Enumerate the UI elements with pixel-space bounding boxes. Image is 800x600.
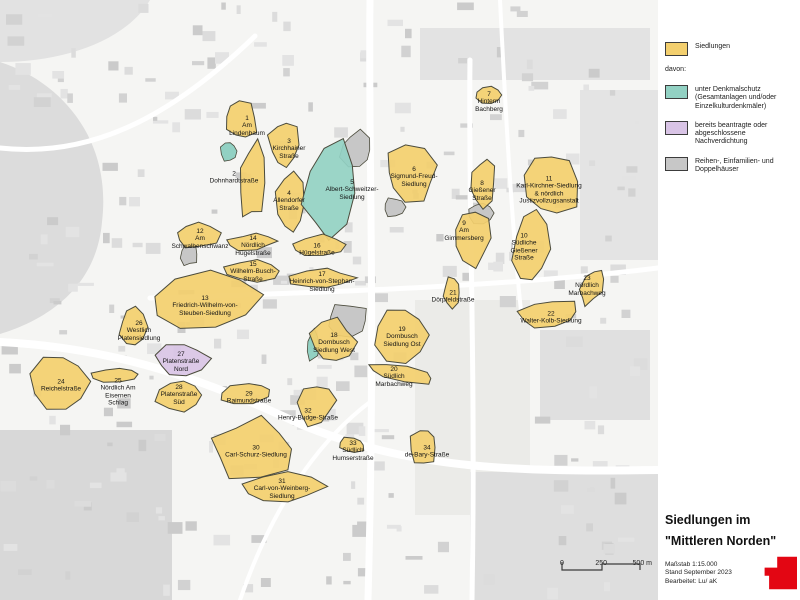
settlement-14: 14Nördlich Hügelstraße: [231, 235, 275, 257]
settlement-number: 22: [514, 311, 588, 318]
settlement-name: Henry-Budge-Straße: [270, 415, 346, 422]
settlement-name: Am Lindenbaum: [225, 122, 269, 137]
settlement-name: Hinterm Bachberg: [469, 98, 509, 113]
settlement-name: Am Schwalbenschwanz: [169, 235, 231, 250]
legend-item-nachverdichtung: bereits beantragte oder abgeschlossene N…: [665, 121, 797, 147]
settlement-number: 33: [329, 440, 377, 447]
settlement-number: 7: [469, 91, 509, 98]
settlement-number: 32: [270, 408, 346, 415]
map-scale-note: Maßstab 1:15.000: [665, 561, 757, 570]
settlement-5: 5Albert-Schweitzer-Siedlung: [323, 179, 381, 201]
settlement-name: Wilhelm-Busch-Straße: [224, 268, 282, 283]
settlement-16: 16Hügelstraße: [293, 243, 341, 258]
nachverdichtung-swatch: [665, 121, 688, 135]
settlement-11: 11Karl-Kirchner-Siedlung & nördlich Just…: [516, 175, 582, 204]
settlement-number: 1: [225, 115, 269, 122]
settlement-number: 2: [208, 171, 260, 178]
frankfurt-planning-logo-icon: [761, 556, 797, 590]
settlement-23: 23Nördlich Marbachweg: [565, 275, 609, 297]
settlement-name: Am Gimmersberg: [439, 227, 489, 242]
settlement-number: 34: [401, 445, 453, 452]
settlement-27: 27Platenstraße Nord: [157, 351, 205, 373]
settlement-9: 9Am Gimmersberg: [439, 220, 489, 242]
settlement-1: 1Am Lindenbaum: [225, 115, 269, 137]
settlement-number: 8: [464, 180, 500, 187]
settlement-number: 18: [313, 332, 355, 339]
settlement-number: 23: [565, 275, 609, 282]
settlement-name: Heinrich-von-Stephan-Siedlung: [282, 278, 362, 293]
map-sheet: 1Am Lindenbaum2Dohnhardtstraße3Kirchhain…: [0, 0, 800, 600]
settlement-20: 20Südlich Marbachweg: [371, 366, 417, 388]
settlement-number: 3: [269, 138, 309, 145]
settlement-number: 28: [155, 384, 203, 391]
settlement-29: 29Raimundstraße: [221, 391, 277, 406]
settlement-number: 29: [221, 391, 277, 398]
legend: Siedlungen davon: unter Denkmalschutz (G…: [665, 42, 797, 184]
settlement-name: Walter-Kolb-Siedlung: [514, 318, 588, 325]
settlement-number: 17: [282, 271, 362, 278]
settlement-13: 13Friedrich-Wilhelm-von-Steuben-Siedlung: [163, 295, 247, 317]
legend-label: Reihen-, Einfamilien- und Doppelhäuser: [695, 157, 797, 175]
settlement-number: 21: [429, 290, 477, 297]
settlement-22: 22Walter-Kolb-Siedlung: [514, 311, 588, 326]
settlement-10: 10Südliche Gießener Straße: [504, 232, 544, 261]
scale-bar-steps: [560, 560, 652, 574]
settlement-name: Nördlich Am Eisernen Schlag: [99, 385, 137, 407]
settlement-name: Nördlich Hügelstraße: [231, 242, 275, 257]
settlement-18: 18Dornbusch Siedlung West: [313, 332, 355, 354]
settlement-8: 8Gießener Straße: [464, 180, 500, 202]
settlement-number: 31: [243, 478, 321, 485]
map-title-line1: Siedlungen im: [665, 510, 797, 531]
legend-item-denkmalschutz: unter Denkmalschutz (Gesamtanlagen und/o…: [665, 85, 797, 111]
settlement-number: 12: [169, 228, 231, 235]
settlement-30: 30Carl-Schurz-Siedlung: [217, 445, 295, 460]
map-date-note: Stand September 2023: [665, 569, 757, 578]
settlement-17: 17Heinrich-von-Stephan-Siedlung: [282, 271, 362, 293]
settlement-name: Südlich Marbachweg: [371, 373, 417, 388]
settlement-name: Hügelstraße: [293, 250, 341, 257]
settlement-name: Westlich Platensiedlung: [115, 327, 163, 342]
settlement-number: 16: [293, 243, 341, 250]
settlement-2: 2Dohnhardtstraße: [208, 171, 260, 186]
map-title-line2: "Mittleren Norden": [665, 531, 797, 552]
settlement-number: 5: [323, 179, 381, 186]
settlement-number: 27: [157, 351, 205, 358]
settlement-name: Dörpfeldstraße: [429, 297, 477, 304]
settlement-name: Gießener Straße: [464, 187, 500, 202]
settlement-number: 15: [224, 261, 282, 268]
settlement-name: Karl-Kirchner-Siedlung & nördlich Justiz…: [516, 183, 582, 205]
side-panel: Siedlungen davon: unter Denkmalschutz (G…: [658, 0, 800, 600]
settlement-number: 19: [381, 326, 423, 333]
denkmalschutz-swatch: [665, 85, 688, 99]
settlement-name: Südliche Gießener Straße: [504, 240, 544, 262]
settlement-name: Carl-Schurz-Siedlung: [217, 452, 295, 459]
settlement-name: Kirchhainer Straße: [269, 145, 309, 160]
settlement-name: Südlich Humserstraße: [329, 447, 377, 462]
settlement-name: Reichelstraße: [37, 386, 85, 393]
map-canvas: 1Am Lindenbaum2Dohnhardtstraße3Kirchhain…: [0, 0, 658, 600]
legend-label: unter Denkmalschutz (Gesamtanlagen und/o…: [695, 85, 797, 111]
legend-item-reihenhaeuser: Reihen-, Einfamilien- und Doppelhäuser: [665, 157, 797, 175]
settlement-25: 25Nördlich Am Eisernen Schlag: [99, 377, 137, 406]
reihenhaeuser-swatch: [665, 157, 688, 171]
settlement-7: 7Hinterm Bachberg: [469, 91, 509, 113]
settlement-name: Friedrich-Wilhelm-von-Steuben-Siedlung: [163, 302, 247, 317]
settlement-number: 11: [516, 175, 582, 182]
settlement-6: 6Sigmund-Freud-Siedlung: [386, 166, 442, 188]
settlement-21: 21Dörpfeldstraße: [429, 290, 477, 305]
settlement-name: Carl-von-Weinberg-Siedlung: [243, 485, 321, 500]
davon-label: davon:: [665, 66, 797, 73]
title-block: Siedlungen im "Mittleren Norden" Maßstab…: [665, 510, 797, 587]
settlement-name: Raimundstraße: [221, 398, 277, 405]
settlement-number: 9: [439, 220, 489, 227]
basemap-graphic: [0, 0, 658, 600]
settlement-name: Sigmund-Freud-Siedlung: [386, 173, 442, 188]
settlement-name: Nördlich Marbachweg: [565, 282, 609, 297]
settlement-number: 4: [269, 190, 309, 197]
settlement-name: Platenstraße Nord: [157, 358, 205, 373]
scale-bar: 0 250 500 m: [560, 560, 652, 567]
legend-label: Siedlungen: [695, 42, 730, 51]
legend-item-siedlungen: Siedlungen: [665, 42, 797, 56]
settlement-name: Albert-Schweitzer-Siedlung: [323, 186, 381, 201]
settlement-number: 30: [217, 445, 295, 452]
settlement-number: 13: [163, 295, 247, 302]
settlement-name: Dornbusch Siedlung West: [313, 339, 355, 354]
settlement-number: 14: [231, 235, 275, 242]
settlement-24: 24Reichelstraße: [37, 379, 85, 394]
settlement-number: 20: [371, 366, 417, 373]
settlement-26: 26Westlich Platensiedlung: [115, 320, 163, 342]
legend-label: bereits beantragte oder abgeschlossene N…: [695, 121, 797, 147]
settlement-3: 3Kirchhainer Straße: [269, 138, 309, 160]
settlement-28: 28Platenstraße Süd: [155, 384, 203, 406]
settlement-33: 33Südlich Humserstraße: [329, 440, 377, 462]
settlement-name: Dornbusch Siedlung Ost: [381, 333, 423, 348]
settlement-31: 31Carl-von-Weinberg-Siedlung: [243, 478, 321, 500]
settlement-12: 12Am Schwalbenschwanz: [169, 228, 231, 250]
settlement-34: 34de-Bary-Straße: [401, 445, 453, 460]
siedlungen-swatch: [665, 42, 688, 56]
settlement-number: 25: [99, 377, 137, 384]
settlement-name: Dohnhardtstraße: [208, 178, 260, 185]
settlement-number: 24: [37, 379, 85, 386]
settlement-name: Allendorfer Straße: [269, 197, 309, 212]
settlement-32: 32Henry-Budge-Straße: [270, 408, 346, 423]
settlement-name: Platenstraße Süd: [155, 391, 203, 406]
settlement-name: de-Bary-Straße: [401, 452, 453, 459]
settlement-4: 4Allendorfer Straße: [269, 190, 309, 212]
settlement-number: 6: [386, 166, 442, 173]
settlement-number: 10: [504, 232, 544, 239]
map-editor-note: Bearbeitet: Lu/ aK: [665, 578, 757, 587]
settlement-number: 26: [115, 320, 163, 327]
settlement-15: 15Wilhelm-Busch-Straße: [224, 261, 282, 283]
settlement-19: 19Dornbusch Siedlung Ost: [381, 326, 423, 348]
